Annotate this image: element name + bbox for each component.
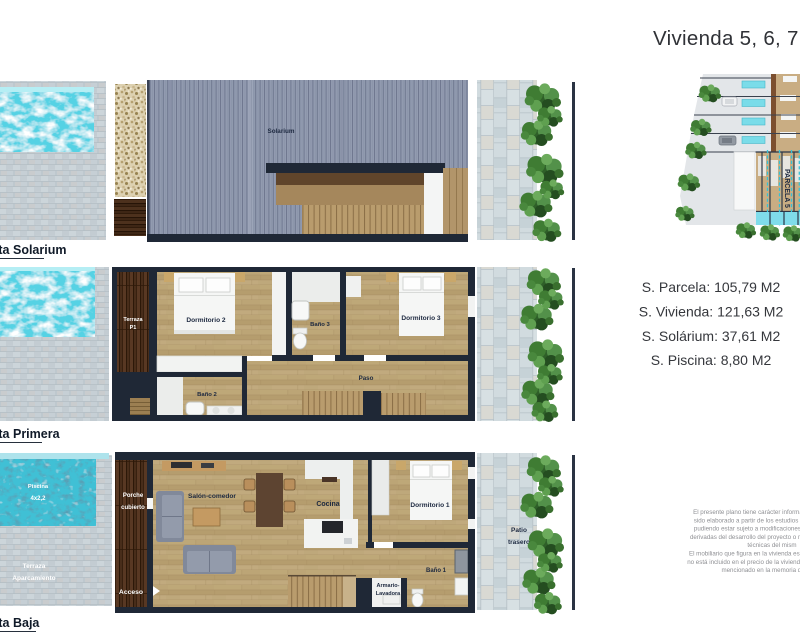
svg-text:El presente plano tiene caráct: El presente plano tiene carácter informa… — [693, 509, 800, 516]
svg-text:Terraza: Terraza — [123, 317, 143, 323]
svg-text:Planta Solarium: Planta Solarium — [0, 243, 66, 257]
svg-text:pudiendo estar sujeto a modifi: pudiendo estar sujeto a modificaciones d… — [694, 526, 800, 533]
svg-text:S. Piscina: 8,80 M2: S. Piscina: 8,80 M2 — [651, 352, 772, 368]
svg-text:S. Solárium: 37,61 M2: S. Solárium: 37,61 M2 — [642, 328, 781, 344]
svg-text:trasero: trasero — [508, 539, 530, 546]
svg-text:Lavadora: Lavadora — [376, 591, 401, 597]
svg-text:no está incluido en el precio: no está incluido en el precio de la vivi… — [687, 559, 800, 566]
svg-text:Piscina: Piscina — [28, 484, 49, 490]
svg-text:cubierto: cubierto — [121, 505, 145, 511]
svg-text:Baño 1: Baño 1 — [426, 568, 447, 574]
svg-text:S. Parcela: 105,79 M2: S. Parcela: 105,79 M2 — [642, 279, 781, 295]
svg-text:Cocina: Cocina — [316, 501, 339, 508]
svg-text:PARCELA 5: PARCELA 5 — [783, 169, 790, 208]
svg-text:Aparcamiento: Aparcamiento — [12, 575, 55, 582]
svg-text:técnicas del mism: técnicas del mism — [747, 542, 796, 549]
svg-text:Solarium: Solarium — [268, 128, 295, 135]
svg-text:S. Vivienda: 121,63 M2: S. Vivienda: 121,63 M2 — [639, 304, 784, 320]
svg-text:Baño 2: Baño 2 — [197, 392, 217, 398]
svg-text:Dormitorio 1: Dormitorio 1 — [410, 502, 450, 509]
svg-text:Terraza: Terraza — [23, 563, 46, 570]
svg-text:Baño 3: Baño 3 — [310, 322, 330, 328]
svg-text:Salón-comedor: Salón-comedor — [188, 493, 236, 500]
svg-text:mencionado en la memoria de ca: mencionado en la memoria de calida — [721, 567, 800, 574]
svg-text:Porche: Porche — [123, 493, 144, 499]
svg-text:Dormitorio 2: Dormitorio 2 — [186, 317, 226, 324]
svg-text:sido elaborado a partir de los: sido elaborado a partir de los estudios … — [694, 517, 800, 524]
svg-text:El mobiliario que figura en la: El mobiliario que figura en la vivienda … — [689, 551, 800, 558]
svg-text:4x2,2: 4x2,2 — [30, 496, 46, 502]
svg-text:Patio: Patio — [511, 527, 527, 534]
svg-text:Armario-: Armario- — [377, 583, 400, 589]
svg-text:Planta Baja: Planta Baja — [0, 616, 40, 630]
svg-text:P1: P1 — [130, 325, 137, 331]
svg-text:Acceso: Acceso — [119, 589, 143, 596]
svg-text:Vivienda 5, 6, 7: Vivienda 5, 6, 7 — [653, 27, 799, 50]
svg-text:Planta Primera: Planta Primera — [0, 427, 61, 441]
svg-text:Paso: Paso — [359, 375, 374, 382]
svg-text:derivadas del desarrollo del p: derivadas del desarrollo del proyecto o … — [690, 534, 800, 541]
svg-text:Dormitorio 3: Dormitorio 3 — [401, 315, 441, 322]
